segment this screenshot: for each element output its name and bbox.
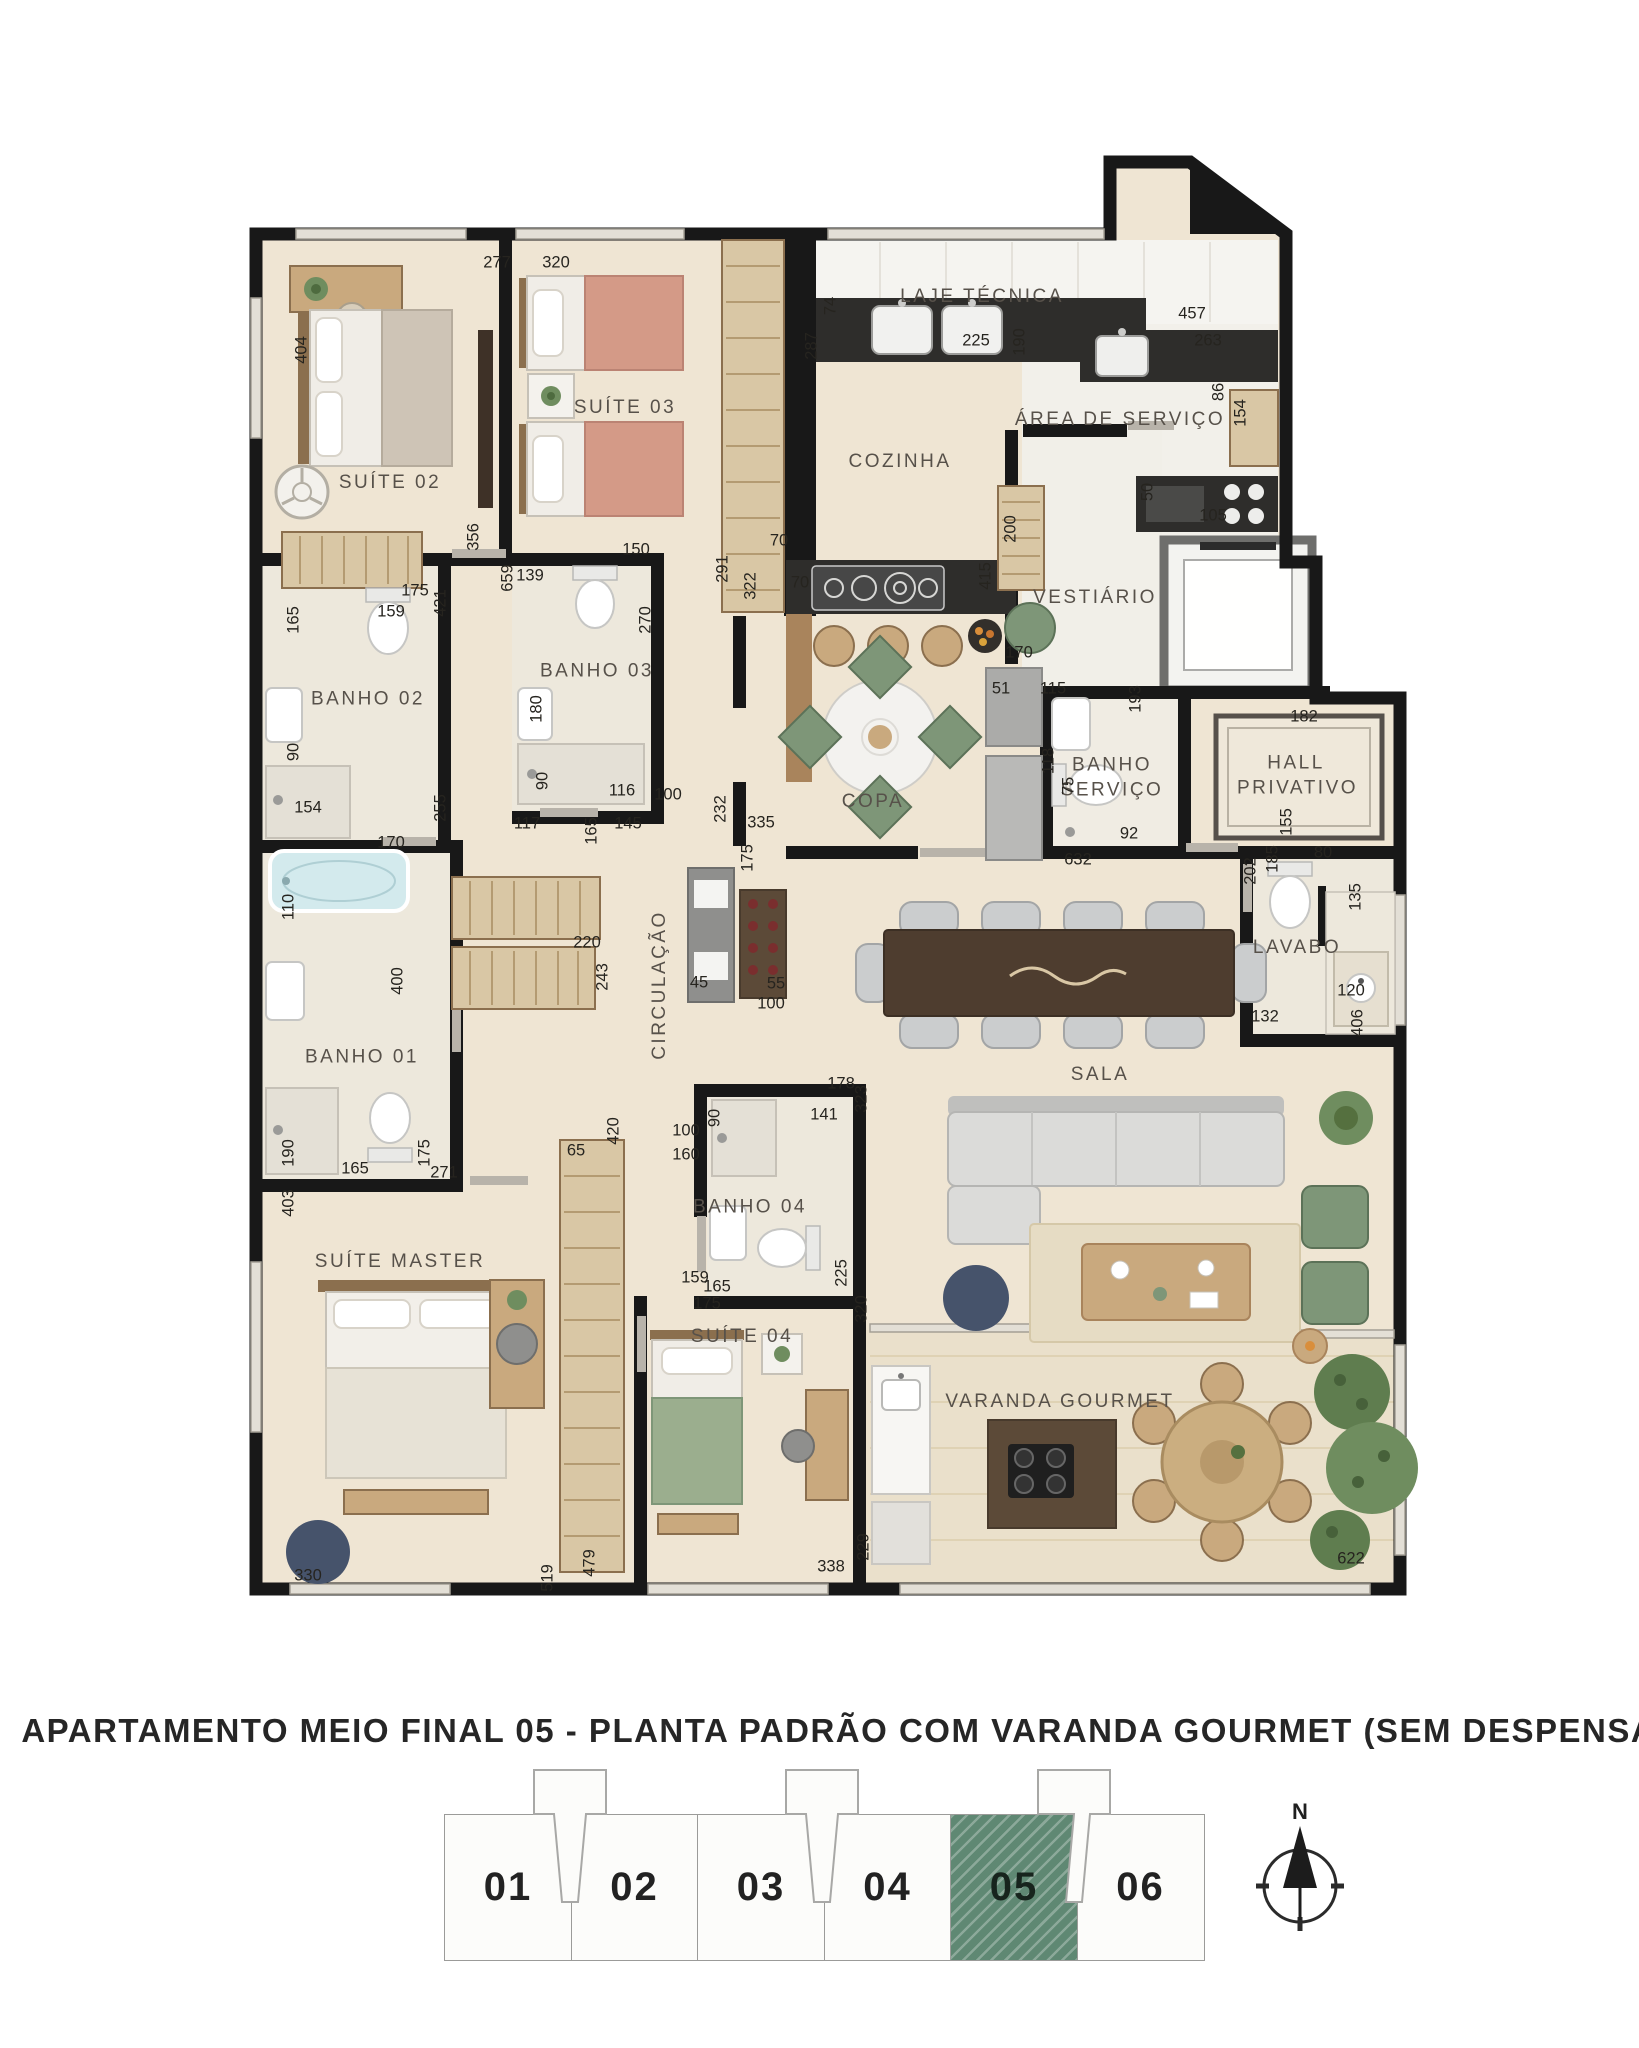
keyplan-unit-02: 02 (571, 1814, 699, 1961)
keyplan-unit-04: 04 (824, 1814, 952, 1961)
floor-plan-page: SUÍTE 02SUÍTE 03LAJE TÉCNICACOZINHAÁREA … (0, 0, 1639, 2048)
keyplan-unit-01: 01 (444, 1814, 572, 1961)
keyplan-unit-06: 06 (1077, 1814, 1205, 1961)
keyplan-unit-05: 05 (950, 1814, 1078, 1961)
plan-title: APARTAMENTO MEIO FINAL 05 - PLANTA PADRÃ… (21, 1712, 1639, 1750)
keyplan-units: 010203040506 (444, 1814, 1203, 1961)
north-compass-icon (1256, 1826, 1344, 1931)
north-label: N (1292, 1799, 1308, 1825)
keyplan-unit-03: 03 (697, 1814, 825, 1961)
